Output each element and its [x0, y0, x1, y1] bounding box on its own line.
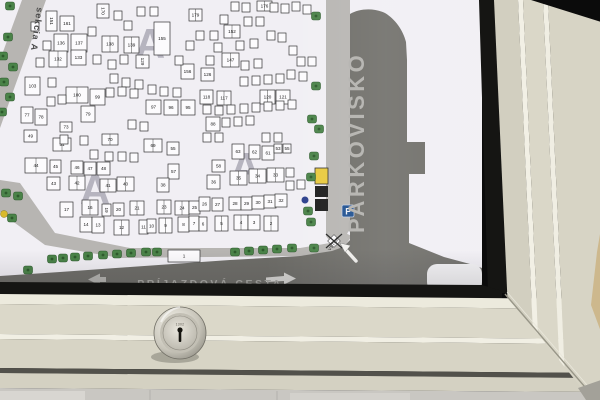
photo-of-map-display-case: AAA 151161136137132133170138139155129179…: [0, 0, 600, 400]
frame-bottom-face: [0, 304, 600, 339]
lock-keyhole-slot: [179, 330, 182, 342]
frame-bottom-rail: [0, 294, 600, 392]
floor-patch: [290, 393, 410, 400]
floor-patch: [0, 391, 85, 400]
glass-reflection: [0, 0, 482, 292]
lock-code: 1302: [176, 323, 185, 327]
frame-bottom-face2: [0, 339, 600, 373]
map-board: AAA 151161136137132133170138139155129179…: [0, 0, 482, 292]
scene-svg: AAA 151161136137132133170138139155129179…: [0, 0, 600, 400]
